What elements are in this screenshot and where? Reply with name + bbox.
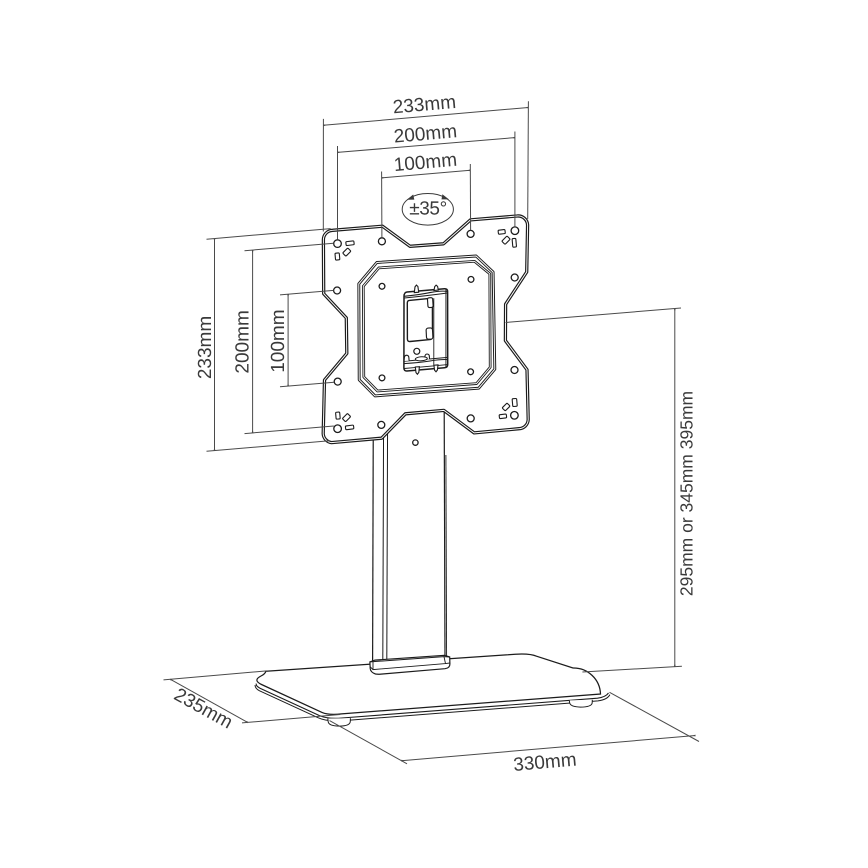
svg-text:200mm: 200mm [232, 310, 253, 373]
svg-text:235mm: 235mm [170, 684, 236, 733]
svg-text:330mm: 330mm [512, 749, 577, 775]
svg-text:±35°: ±35° [409, 199, 447, 220]
svg-text:233mm: 233mm [195, 316, 216, 379]
svg-text:200mm: 200mm [393, 121, 458, 147]
svg-text:100mm: 100mm [268, 309, 289, 372]
svg-text:295mm or 345mm 395mm: 295mm or 345mm 395mm [677, 391, 697, 596]
